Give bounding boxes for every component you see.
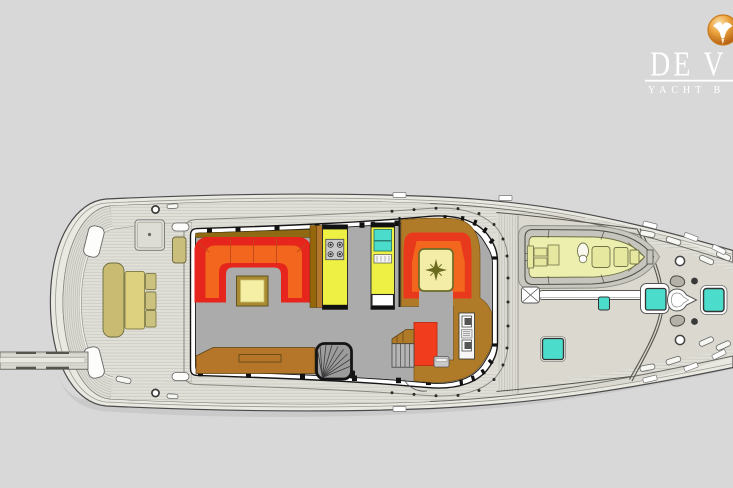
svg-text:DE V: DE V [650, 45, 727, 84]
svg-text:YACHT B: YACHT B [648, 85, 725, 96]
